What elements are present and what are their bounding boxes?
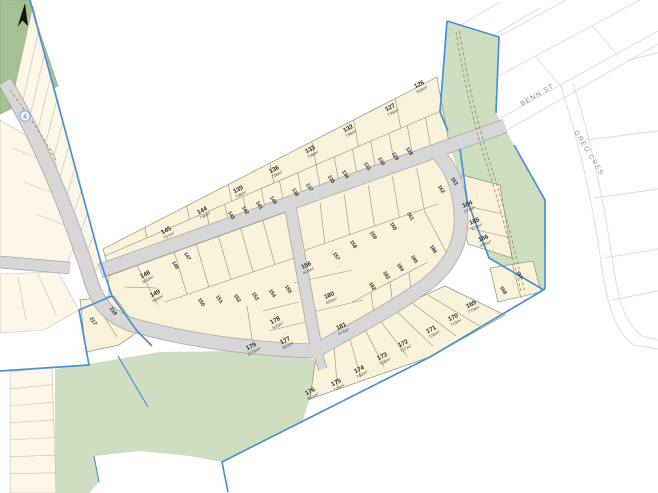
faint-street-line <box>586 131 658 140</box>
faint-street-line <box>628 53 658 60</box>
faint-street-line <box>592 25 618 56</box>
faint-street-greg-cres <box>561 86 658 349</box>
faint-street-line <box>502 44 658 133</box>
existing-lot-column <box>10 367 56 493</box>
faint-street-line <box>594 189 658 198</box>
reserve-south-open-space <box>55 351 318 493</box>
plat-map-svg: 126634m²127739m²132739m²133738m²136738m²… <box>0 0 658 493</box>
existing-lot-strip <box>0 272 79 333</box>
faint-street-greg-cres <box>573 83 658 340</box>
road-ref-marker: 4 <box>20 111 30 121</box>
road-west-stub <box>0 262 70 268</box>
faint-street-line <box>497 31 658 120</box>
plat-map: 126634m²127739m²132739m²133738m²136738m²… <box>0 0 658 493</box>
faint-street-line <box>536 57 562 88</box>
faint-street-line <box>476 0 640 88</box>
map-geometry <box>0 0 658 493</box>
street-label-benn-st: BENN ST <box>520 83 556 108</box>
